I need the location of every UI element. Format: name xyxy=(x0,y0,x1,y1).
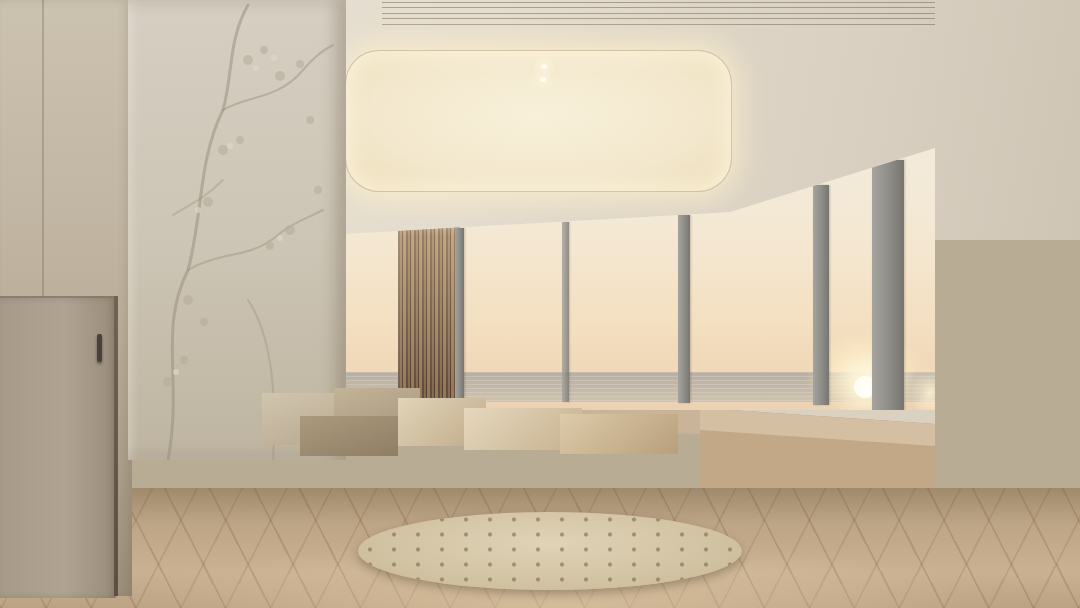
right-wardrobe xyxy=(933,0,1080,588)
pillow xyxy=(300,416,398,456)
area-rug xyxy=(358,512,742,590)
downlight-icon xyxy=(540,77,546,82)
corner-window-pillar xyxy=(872,160,904,410)
pendant-globe-lamp xyxy=(369,343,393,367)
downlight-icon xyxy=(541,64,547,69)
door-frame-seam xyxy=(114,296,118,596)
ac-vent-grille xyxy=(382,2,935,27)
floral-wallpaper-panel xyxy=(128,0,346,460)
window-mullion xyxy=(678,215,690,403)
window-mullion xyxy=(455,228,464,402)
ceiling-light-cove xyxy=(345,50,732,192)
striped-drapery xyxy=(398,223,460,405)
left-wall xyxy=(0,0,132,596)
door-handle xyxy=(97,334,102,362)
wallpaper-pattern xyxy=(128,0,346,460)
bedroom-annotated-render: 中央空调系统 楼板隔音涂层 高密度隔音分户墙 断桥隔热铝合金型材 三层夹胶(Lo… xyxy=(0,0,1080,608)
window-mullion xyxy=(813,185,829,405)
bolster-pillow xyxy=(560,414,678,454)
window-mullion xyxy=(562,222,569,402)
wall-panel-seam xyxy=(42,0,44,300)
